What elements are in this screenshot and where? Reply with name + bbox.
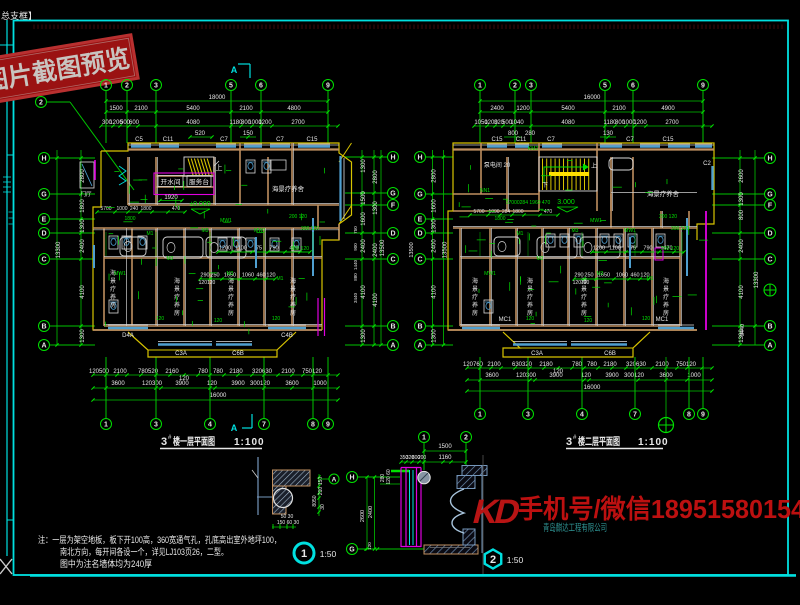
svg-text:1500: 1500 (361, 191, 367, 205)
svg-text:120: 120 (266, 273, 275, 279)
svg-text:1300: 1300 (739, 192, 745, 206)
svg-text:海景疗养舍: 海景疗养舍 (647, 189, 679, 198)
svg-text:5700: 5700 (100, 206, 111, 212)
svg-text:520: 520 (195, 131, 206, 137)
svg-text:8: 8 (687, 412, 691, 419)
svg-text:A: A (390, 343, 395, 350)
svg-text:3900: 3900 (549, 373, 563, 379)
svg-text:D: D (41, 231, 46, 238)
svg-text:1:50: 1:50 (507, 555, 524, 565)
svg-text:景: 景 (228, 286, 234, 293)
svg-text:门厅: 门厅 (80, 190, 92, 198)
svg-text:房: 房 (472, 309, 478, 317)
svg-text:C11: C11 (516, 137, 527, 143)
svg-text:房: 房 (110, 301, 116, 309)
svg-text:880: 880 (353, 273, 358, 281)
svg-text:120: 120 (642, 316, 651, 322)
svg-text:13500: 13500 (409, 242, 415, 257)
svg-text:1800: 1800 (140, 206, 151, 212)
svg-text:1200: 1200 (593, 246, 605, 252)
svg-text:120: 120 (272, 316, 281, 322)
svg-text:5400: 5400 (186, 106, 200, 112)
svg-text:3900: 3900 (605, 373, 619, 379)
svg-text:M3: M3 (572, 228, 579, 234)
svg-text:C: C (41, 257, 46, 264)
svg-text:800: 800 (739, 209, 745, 220)
svg-text:4: 4 (208, 422, 212, 429)
svg-text:5: 5 (229, 83, 233, 90)
svg-text:6: 6 (259, 83, 263, 90)
svg-text:养: 养 (581, 301, 587, 309)
svg-text:2600: 2600 (739, 169, 745, 183)
svg-text:1300: 1300 (361, 159, 367, 173)
svg-text:13300: 13300 (56, 241, 62, 258)
svg-text:780: 780 (213, 369, 224, 375)
svg-text:M2: M2 (167, 256, 174, 262)
svg-text:C7: C7 (547, 137, 555, 143)
svg-text:3: 3 (154, 83, 158, 90)
svg-text:NN1: NN1 (480, 188, 490, 194)
svg-text:F: F (391, 203, 396, 210)
svg-text:1200: 1200 (219, 246, 231, 252)
svg-text:房: 房 (663, 309, 669, 317)
svg-text:18000: 18000 (209, 95, 226, 101)
svg-text:C7: C7 (276, 137, 284, 143)
svg-text:青岛麒达工程有限公司: 青岛麒达工程有限公司 (543, 522, 607, 534)
svg-text:疗: 疗 (228, 293, 234, 301)
svg-text:疗: 疗 (581, 293, 587, 301)
svg-text:M1: M1 (277, 276, 284, 282)
svg-text:D4A: D4A (122, 333, 134, 339)
svg-text:养: 养 (110, 293, 116, 301)
svg-text:780: 780 (198, 369, 209, 375)
svg-text:200 120: 200 120 (659, 214, 677, 220)
svg-text:130: 130 (603, 131, 614, 137)
svg-text:1: 1 (104, 83, 108, 90)
svg-text:1000: 1000 (488, 209, 499, 215)
svg-text:1: 1 (104, 422, 108, 429)
svg-text:8050: 8050 (312, 495, 318, 506)
svg-text:1800: 1800 (80, 199, 86, 213)
svg-text:16000: 16000 (584, 95, 601, 101)
svg-text:120: 120 (584, 318, 593, 324)
svg-text:A: A (332, 476, 337, 483)
svg-text:2100: 2100 (655, 362, 669, 368)
svg-text:疗: 疗 (663, 293, 669, 301)
svg-text:2400: 2400 (361, 239, 367, 253)
svg-text:C: C (417, 257, 422, 264)
svg-text:G: G (349, 547, 355, 554)
svg-text:1500: 1500 (438, 444, 452, 450)
svg-text:3: 3 (566, 436, 572, 448)
svg-text:C: C (390, 257, 395, 264)
svg-text:2600: 2600 (360, 510, 366, 522)
svg-text:320630: 320630 (252, 369, 273, 375)
svg-text:C3A: C3A (531, 351, 543, 357)
svg-text:4100: 4100 (739, 285, 745, 299)
svg-text:800 120: 800 120 (291, 246, 309, 252)
svg-text:B: B (390, 324, 395, 331)
svg-text:注：一层为架空地板，板下开100高，360宽通气孔，孔底高出: 注：一层为架空地板，板下开100高，360宽通气孔，孔底高出室外地坪100， (38, 534, 281, 545)
svg-text:2100: 2100 (113, 369, 127, 375)
svg-text:F: F (768, 203, 773, 210)
svg-text:2700: 2700 (291, 120, 305, 126)
svg-text:手机号/微信18951580154: 手机号/微信18951580154 (518, 494, 800, 524)
svg-text:4100: 4100 (80, 285, 86, 299)
svg-text:MW1: MW1 (114, 271, 126, 277)
svg-text:290: 290 (200, 273, 209, 279)
svg-text:1500: 1500 (109, 106, 123, 112)
svg-text:养: 养 (527, 301, 533, 309)
svg-text:1:100: 1:100 (234, 437, 265, 448)
svg-text:460: 460 (630, 273, 639, 279)
svg-text:D: D (390, 231, 395, 238)
svg-text:240: 240 (130, 206, 139, 212)
svg-text:290: 290 (574, 273, 583, 279)
svg-text:120: 120 (214, 318, 223, 324)
svg-text:3600: 3600 (485, 373, 499, 379)
svg-text:1300: 1300 (432, 329, 438, 343)
svg-text:2160: 2160 (165, 369, 179, 375)
svg-text:C4B: C4B (281, 333, 293, 339)
svg-text:1200: 1200 (633, 120, 647, 126)
svg-text:320630: 320630 (626, 362, 647, 368)
svg-text:280: 280 (525, 131, 536, 137)
svg-text:1440: 1440 (353, 259, 358, 270)
svg-text:120300: 120300 (142, 381, 163, 387)
svg-text:1800: 1800 (512, 209, 523, 215)
svg-text:楼二层平面图: 楼二层平面图 (578, 435, 620, 448)
svg-text:C7: C7 (626, 137, 634, 143)
svg-text:A: A (41, 343, 46, 350)
svg-text:120: 120 (207, 381, 218, 387)
svg-text:900: 900 (353, 243, 358, 251)
svg-text:M3: M3 (227, 271, 234, 277)
svg-text:海: 海 (527, 277, 533, 285)
svg-text:疗: 疗 (110, 285, 116, 293)
svg-text:2400: 2400 (432, 239, 438, 253)
svg-text:2100: 2100 (612, 106, 626, 112)
svg-text:750120: 750120 (676, 362, 697, 368)
svg-text:1300: 1300 (361, 329, 367, 343)
svg-text:250: 250 (584, 273, 593, 279)
svg-text:1: 1 (478, 412, 482, 419)
svg-text:16000: 16000 (210, 393, 227, 399)
svg-text:养: 养 (228, 301, 234, 309)
svg-text:200 120: 200 120 (289, 214, 307, 220)
svg-text:30: 30 (320, 504, 326, 510)
svg-text:图中为注名墙体均为240厚: 图中为注名墙体均为240厚 (60, 558, 152, 569)
svg-text:MW1: MW1 (220, 218, 232, 224)
svg-text:海景疗养舍: 海景疗养舍 (272, 184, 304, 193)
svg-text:MW1: MW1 (590, 218, 602, 224)
svg-text:M2: M2 (537, 256, 544, 262)
svg-text:120: 120 (526, 316, 535, 322)
svg-text:2180: 2180 (603, 362, 617, 368)
svg-text:4900: 4900 (661, 106, 675, 112)
svg-text:3900: 3900 (175, 381, 189, 387)
svg-text:疗: 疗 (527, 293, 533, 301)
svg-text:4100: 4100 (432, 285, 438, 299)
svg-text:9: 9 (701, 83, 705, 90)
svg-text:9: 9 (326, 83, 330, 90)
svg-text:4080: 4080 (186, 120, 200, 126)
svg-text:A: A (767, 343, 772, 350)
svg-text:A: A (231, 65, 238, 75)
svg-text:1060: 1060 (242, 273, 254, 279)
svg-text:C3A: C3A (175, 351, 187, 357)
svg-text:2100: 2100 (487, 362, 501, 368)
svg-text:2: 2 (464, 435, 468, 442)
svg-text:1:50: 1:50 (320, 549, 337, 559)
svg-text:景: 景 (472, 286, 478, 293)
svg-text:780: 780 (587, 362, 598, 368)
svg-text:MW1: MW1 (484, 271, 496, 277)
svg-text:120: 120 (156, 316, 165, 322)
svg-text:9: 9 (701, 412, 705, 419)
svg-text:750: 750 (353, 226, 358, 234)
svg-text:800 120: 800 120 (661, 246, 679, 252)
svg-text:H: H (349, 475, 354, 482)
svg-text:E: E (418, 217, 423, 224)
svg-text:7: 7 (262, 422, 266, 429)
svg-text:300120: 300120 (624, 373, 645, 379)
svg-text:284: 284 (502, 209, 511, 215)
svg-text:上: 上 (591, 162, 597, 170)
svg-text:养: 养 (290, 301, 296, 309)
svg-text:300120: 300120 (250, 381, 271, 387)
svg-text:海: 海 (472, 277, 478, 285)
svg-text:1160: 1160 (439, 455, 453, 461)
svg-text:4100: 4100 (361, 285, 367, 299)
svg-text:630320: 630320 (512, 362, 533, 368)
svg-text:16000: 16000 (584, 385, 601, 391)
svg-text:疗: 疗 (472, 293, 478, 301)
svg-text:3: 3 (154, 422, 158, 429)
svg-text:790: 790 (269, 246, 278, 252)
svg-text:2400: 2400 (373, 243, 379, 257)
svg-text:120500: 120500 (89, 369, 110, 375)
svg-text:MC1: MC1 (499, 317, 512, 323)
svg-text:C6B: C6B (232, 351, 244, 357)
svg-text:1800: 1800 (494, 216, 505, 222)
svg-text:750120: 750120 (302, 369, 323, 375)
svg-text:C: C (767, 257, 772, 264)
svg-text:2: 2 (125, 83, 129, 90)
svg-text:1600: 1600 (432, 199, 438, 213)
svg-text:下: 下 (542, 182, 548, 189)
svg-text:2100: 2100 (239, 106, 253, 112)
svg-text:B: B (767, 324, 772, 331)
svg-text:C15: C15 (491, 137, 503, 143)
svg-text:景: 景 (663, 286, 669, 293)
svg-text:房: 房 (174, 309, 180, 317)
svg-text:3: 3 (526, 412, 530, 419)
svg-text:9: 9 (326, 422, 330, 429)
svg-text:3440: 3440 (740, 324, 746, 336)
svg-text:M1: M1 (647, 276, 654, 282)
svg-text:1060: 1060 (616, 273, 628, 279)
svg-text:120120: 120120 (573, 280, 590, 286)
svg-text:300 120: 300 120 (671, 226, 689, 232)
svg-text:1200: 1200 (516, 106, 530, 112)
svg-text:120: 120 (581, 373, 592, 379)
svg-text:1000: 1000 (313, 381, 327, 387)
svg-text:3: 3 (161, 436, 167, 448)
svg-text:2400: 2400 (739, 239, 745, 253)
svg-text:1300: 1300 (432, 219, 438, 233)
svg-text:M3: M3 (597, 271, 604, 277)
svg-text:1000: 1000 (116, 206, 127, 212)
svg-text:D: D (767, 231, 772, 238)
svg-text:4: 4 (580, 412, 584, 419)
svg-text:2800: 2800 (373, 170, 379, 184)
svg-text:200: 200 (418, 455, 427, 461)
svg-text:8: 8 (311, 422, 315, 429)
svg-text:2700: 2700 (665, 120, 679, 126)
svg-text:150: 150 (243, 131, 254, 137)
svg-text:460: 460 (256, 273, 265, 279)
svg-text:C15: C15 (306, 137, 318, 143)
svg-text:H: H (390, 155, 395, 162)
svg-text:6: 6 (631, 83, 635, 90)
svg-text:1200: 1200 (258, 120, 272, 126)
svg-text:210: 210 (318, 487, 324, 496)
svg-text:3600: 3600 (285, 381, 299, 387)
svg-text:2: 2 (513, 83, 517, 90)
svg-text:MW1: MW1 (624, 228, 636, 234)
svg-text:养: 养 (174, 301, 180, 309)
svg-text:G: G (41, 192, 47, 199)
svg-text:E: E (42, 217, 47, 224)
svg-text:57000284 1960 470: 57000284 1960 470 (506, 200, 551, 206)
svg-text:H: H (417, 155, 422, 162)
svg-text:A: A (417, 343, 422, 350)
svg-text:开水间: 开水间 (161, 177, 181, 186)
svg-text:KM2: KM2 (528, 146, 539, 152)
svg-text:250: 250 (210, 273, 219, 279)
svg-text:3900: 3900 (231, 381, 245, 387)
svg-text:2180: 2180 (539, 362, 553, 368)
svg-text:H: H (767, 156, 772, 163)
svg-text:D: D (417, 231, 422, 238)
svg-text:海: 海 (174, 277, 180, 285)
svg-text:120760: 120760 (463, 362, 484, 368)
svg-text:房: 房 (228, 309, 234, 317)
svg-text:南北方向，每开间各设一个，详见LJ103页26，二型。: 南北方向，每开间各设一个，详见LJ103页26，二型。 (60, 546, 228, 557)
svg-text:4100: 4100 (373, 293, 379, 307)
svg-text:1: 1 (478, 83, 482, 90)
svg-text:1920: 1920 (164, 195, 178, 201)
svg-text:3: 3 (529, 83, 533, 90)
svg-text:C11: C11 (163, 137, 174, 143)
svg-text:海: 海 (663, 277, 669, 285)
svg-text:MC1: MC1 (656, 317, 669, 323)
svg-text:2: 2 (490, 554, 496, 566)
svg-text:总支框】: 总支框】 (1, 10, 37, 21)
svg-text:3600: 3600 (111, 381, 125, 387)
svg-text:C7: C7 (220, 137, 228, 143)
svg-text:1100: 1100 (609, 246, 621, 252)
svg-text:泵电间 20: 泵电间 20 (484, 161, 511, 169)
svg-text:2400: 2400 (80, 239, 86, 253)
svg-text:G: G (767, 192, 773, 199)
svg-text:5400: 5400 (561, 106, 575, 112)
svg-text:A: A (231, 423, 238, 433)
svg-text:150: 150 (318, 477, 324, 486)
svg-text:B: B (41, 324, 46, 331)
svg-text:3.000: 3.000 (557, 199, 575, 206)
svg-text:景: 景 (290, 286, 296, 293)
svg-text:13500: 13500 (380, 239, 386, 256)
svg-text:5700: 5700 (473, 209, 484, 215)
svg-text:服务台: 服务台 (189, 177, 209, 186)
svg-text:海: 海 (290, 277, 296, 285)
svg-text:1040: 1040 (510, 120, 524, 126)
svg-text:B: B (417, 324, 422, 331)
svg-text:120300: 120300 (516, 373, 537, 379)
svg-text:2100: 2100 (134, 106, 148, 112)
svg-text:M1: M1 (147, 231, 154, 237)
svg-text:1: 1 (422, 435, 426, 442)
svg-text:1600: 1600 (361, 212, 367, 226)
svg-text:养: 养 (472, 301, 478, 309)
svg-text:3440: 3440 (353, 292, 358, 303)
svg-text:C6B: C6B (604, 351, 616, 357)
svg-text:600: 600 (129, 120, 140, 126)
svg-text:790: 790 (643, 246, 652, 252)
svg-text:4080: 4080 (561, 120, 575, 126)
svg-text:2180: 2180 (229, 369, 243, 375)
svg-text:2100: 2100 (281, 369, 295, 375)
svg-text:M3: M3 (202, 228, 209, 234)
svg-text:1100: 1100 (235, 246, 247, 252)
svg-text:疗: 疗 (174, 293, 180, 301)
svg-text:13300: 13300 (754, 271, 760, 288)
svg-text:房: 房 (290, 309, 296, 317)
svg-text:C5: C5 (135, 137, 143, 143)
svg-text:±0.000: ±0.000 (189, 201, 210, 208)
svg-text:上: 上 (216, 163, 223, 172)
svg-text:2800: 2800 (432, 169, 438, 183)
svg-text:H: H (41, 156, 46, 163)
svg-text:C15: C15 (662, 137, 674, 143)
svg-text:1300: 1300 (373, 201, 379, 215)
svg-text:7: 7 (633, 412, 637, 419)
svg-text:2: 2 (39, 100, 43, 107)
svg-text:2400: 2400 (368, 506, 374, 518)
svg-text:C2: C2 (703, 161, 711, 167)
svg-text:养: 养 (663, 301, 669, 309)
svg-text:1300: 1300 (80, 329, 86, 343)
svg-text:G: G (417, 192, 423, 199)
svg-text:120120: 120120 (199, 280, 216, 286)
svg-text:景: 景 (110, 278, 116, 285)
svg-text:1: 1 (301, 548, 307, 560)
svg-text:300 120: 300 120 (301, 226, 319, 232)
svg-text:G: G (390, 191, 396, 198)
svg-text:780: 780 (572, 362, 583, 368)
svg-text:景: 景 (174, 286, 180, 293)
svg-text:2400: 2400 (490, 106, 504, 112)
svg-text:M1: M1 (517, 231, 524, 237)
svg-text:疗: 疗 (290, 293, 296, 301)
svg-text:景: 景 (581, 286, 587, 293)
svg-text:5: 5 (603, 83, 607, 90)
svg-text:1300: 1300 (80, 219, 86, 233)
svg-text:1:100: 1:100 (638, 437, 669, 448)
svg-text:4800: 4800 (287, 106, 301, 112)
